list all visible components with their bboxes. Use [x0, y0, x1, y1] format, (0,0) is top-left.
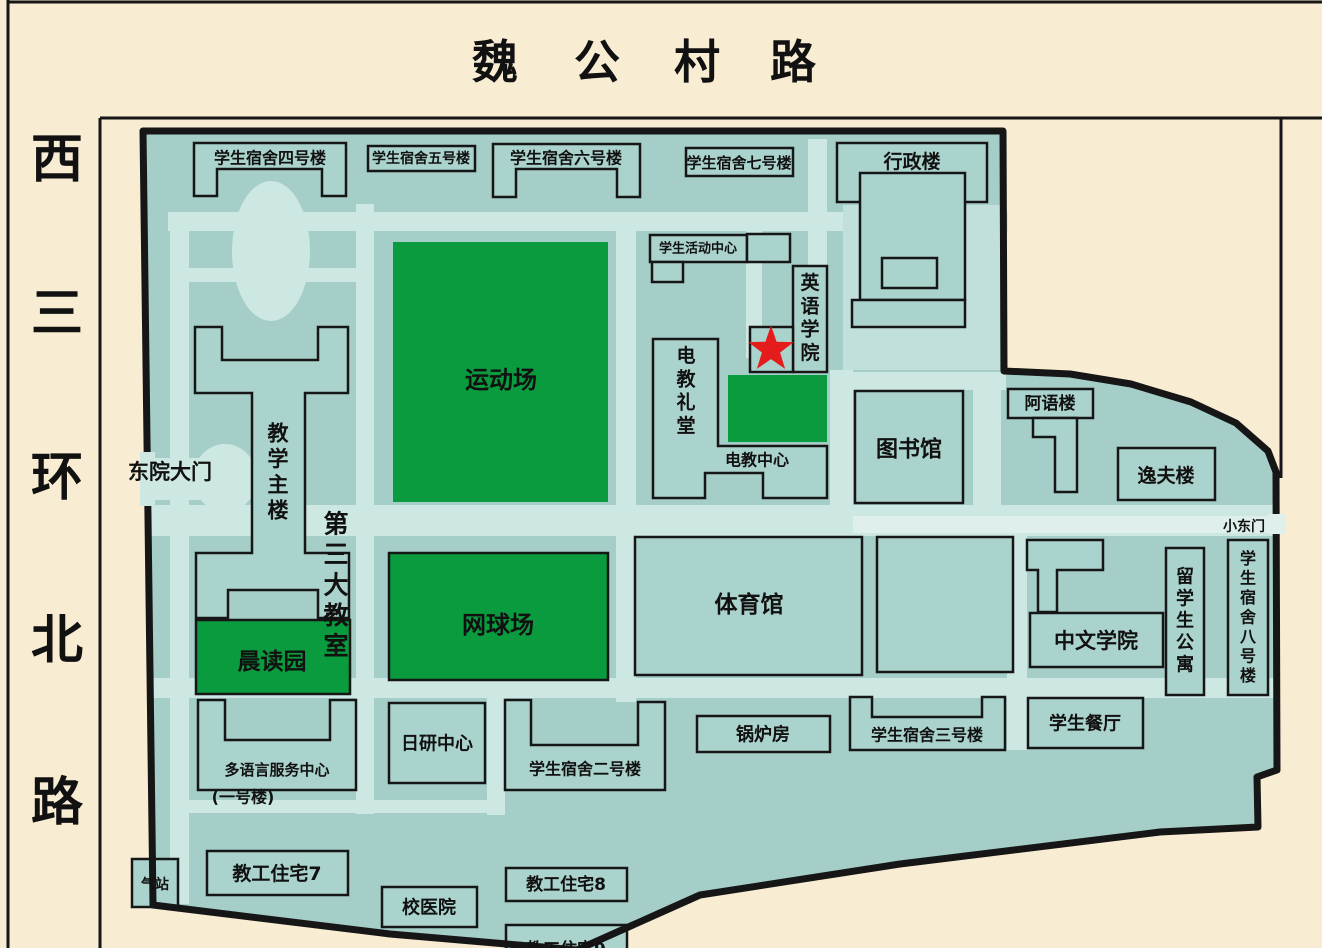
third-classroom-label: 第: [323, 510, 348, 539]
walkway: [830, 370, 853, 536]
building-label-arabic-building: 阿语楼: [1025, 393, 1076, 414]
small-east-gate-label: 小东门: [1223, 518, 1265, 535]
building-label-intl-student-apartment: 公: [1176, 632, 1194, 653]
building-label-student-dorm-2: 学生宿舍二号楼: [529, 760, 641, 779]
building-label-main-teaching-building: 教: [268, 422, 290, 446]
small-east-gate-opening: [1268, 514, 1285, 534]
campus-map-page: 东院大门小东门学生宿舍四号楼学生宿舍五号楼学生宿舍六号楼学生宿舍七号楼行政楼学生…: [0, 0, 1322, 948]
building-label-yifu-building: 逸夫楼: [1137, 464, 1194, 487]
building-label-student-dorm-7: 学生宿舍七号楼: [686, 154, 791, 172]
building-label-main-teaching-building: 主: [268, 473, 289, 497]
building-label-main-teaching-building: 楼: [268, 498, 289, 522]
walkway: [808, 139, 827, 267]
building-label-english-college: 院: [800, 341, 819, 364]
building-label-intl-student-apartment: 寓: [1176, 653, 1194, 675]
third-classroom-label: 室: [323, 632, 348, 661]
building-unlabeled-building: [877, 537, 1013, 672]
building-label-admin-building: 行政楼: [882, 150, 940, 173]
west-third-ring-north-road-label: 北: [31, 611, 83, 671]
building-student-activity-center: [652, 262, 683, 282]
building-label-student-dorm-8: 舍: [1239, 608, 1257, 627]
building-label-main-teaching-building: 学: [268, 447, 289, 471]
av-center-lawn: [728, 375, 827, 442]
building-label-library: 图书馆: [876, 437, 942, 463]
west-third-ring-north-road-label: 环: [31, 448, 83, 508]
building-label-student-dorm-8: 宿: [1240, 588, 1256, 607]
building-label-student-dorm-3: 学生宿舍三号楼: [871, 726, 983, 745]
walkway: [853, 516, 1278, 533]
campus-map: 东院大门小东门学生宿舍四号楼学生宿舍五号楼学生宿舍六号楼学生宿舍七号楼行政楼学生…: [0, 0, 1322, 948]
tennis-court-label: 网球场: [462, 611, 534, 639]
building-label-student-dorm-8: 八: [1239, 627, 1257, 646]
third-classroom-label: 教: [323, 601, 349, 630]
building-label-av-education-hall: 堂: [676, 415, 695, 437]
building-label-intl-student-apartment: 学: [1176, 588, 1194, 610]
plaza: [232, 181, 310, 321]
building-student-activity-center: [747, 234, 790, 262]
weigongcun-road-label: 村: [674, 35, 720, 89]
west-third-ring-north-road-label: 三: [31, 284, 83, 344]
building-1-note: (一号楼): [212, 788, 275, 807]
building-label-multilingual-service-center: 多语言服务中心: [224, 761, 329, 779]
third-classroom-label: 三: [323, 540, 348, 569]
building-label-japan-research-center: 日研中心: [401, 733, 473, 755]
building-label-av-education-hall: 教: [676, 367, 696, 390]
building-label-staff-residence-8: 教工住宅8: [525, 874, 606, 895]
walkway: [487, 690, 505, 815]
building-label-intl-student-apartment: 生: [1176, 610, 1194, 632]
building-label-student-dorm-4: 学生宿舍四号楼: [214, 149, 326, 168]
building-label-student-dorm-8: 学: [1240, 549, 1256, 568]
building-label-staff-residence-7: 教工住宅7: [232, 862, 321, 885]
building-label-staff-residence-9: 教工住宅9: [525, 939, 606, 948]
building-label-student-dorm-6: 学生宿舍六号楼: [510, 149, 622, 168]
weigongcun-road-label: 魏: [472, 35, 518, 89]
walkway: [973, 372, 1001, 535]
building-label-gymnasium: 体育馆: [715, 591, 784, 618]
building-label-student-dorm-5: 学生宿舍五号楼: [372, 150, 470, 167]
building-label-student-dorm-8: 楼: [1240, 666, 1256, 685]
building-label-av-education-hall: 电: [676, 344, 695, 367]
west-third-ring-north-road-label: 西: [31, 130, 83, 190]
morning-reading-garden-label: 晨读园: [238, 649, 307, 675]
building-label-english-college: 英: [800, 271, 820, 294]
walkway: [170, 212, 189, 904]
building-label-campus-hospital: 校医院: [402, 897, 456, 919]
west-third-ring-north-road-label: 路: [31, 773, 84, 833]
east-gate-label: 东院大门: [128, 460, 212, 484]
building-label-student-canteen: 学生餐厅: [1049, 713, 1121, 735]
building-label-boiler-room: 锅炉房: [736, 724, 790, 746]
building-admin-building: [882, 258, 937, 288]
third-classroom-label: 大: [323, 571, 348, 600]
av-education-center-label: 电教中心: [725, 451, 789, 470]
weigongcun-road-label: 路: [770, 35, 817, 89]
building-admin-building: [852, 300, 965, 327]
building-label-student-dorm-8: 号: [1240, 647, 1256, 666]
sports-field-label: 运动场: [465, 366, 537, 394]
walkway: [616, 212, 636, 702]
weigongcun-road-label: 公: [574, 35, 620, 89]
building-label-english-college: 语: [800, 295, 819, 317]
building-label-student-dorm-8: 生: [1240, 568, 1256, 587]
building-label-student-activity-center: 学生活动中心: [659, 241, 737, 257]
building-label-chinese-college: 中文学院: [1054, 629, 1138, 653]
building-label-gas-station: 气站: [140, 876, 169, 893]
building-label-av-education-hall: 礼: [676, 391, 695, 414]
building-label-english-college: 学: [800, 318, 819, 341]
building-label-intl-student-apartment: 留: [1176, 566, 1194, 588]
